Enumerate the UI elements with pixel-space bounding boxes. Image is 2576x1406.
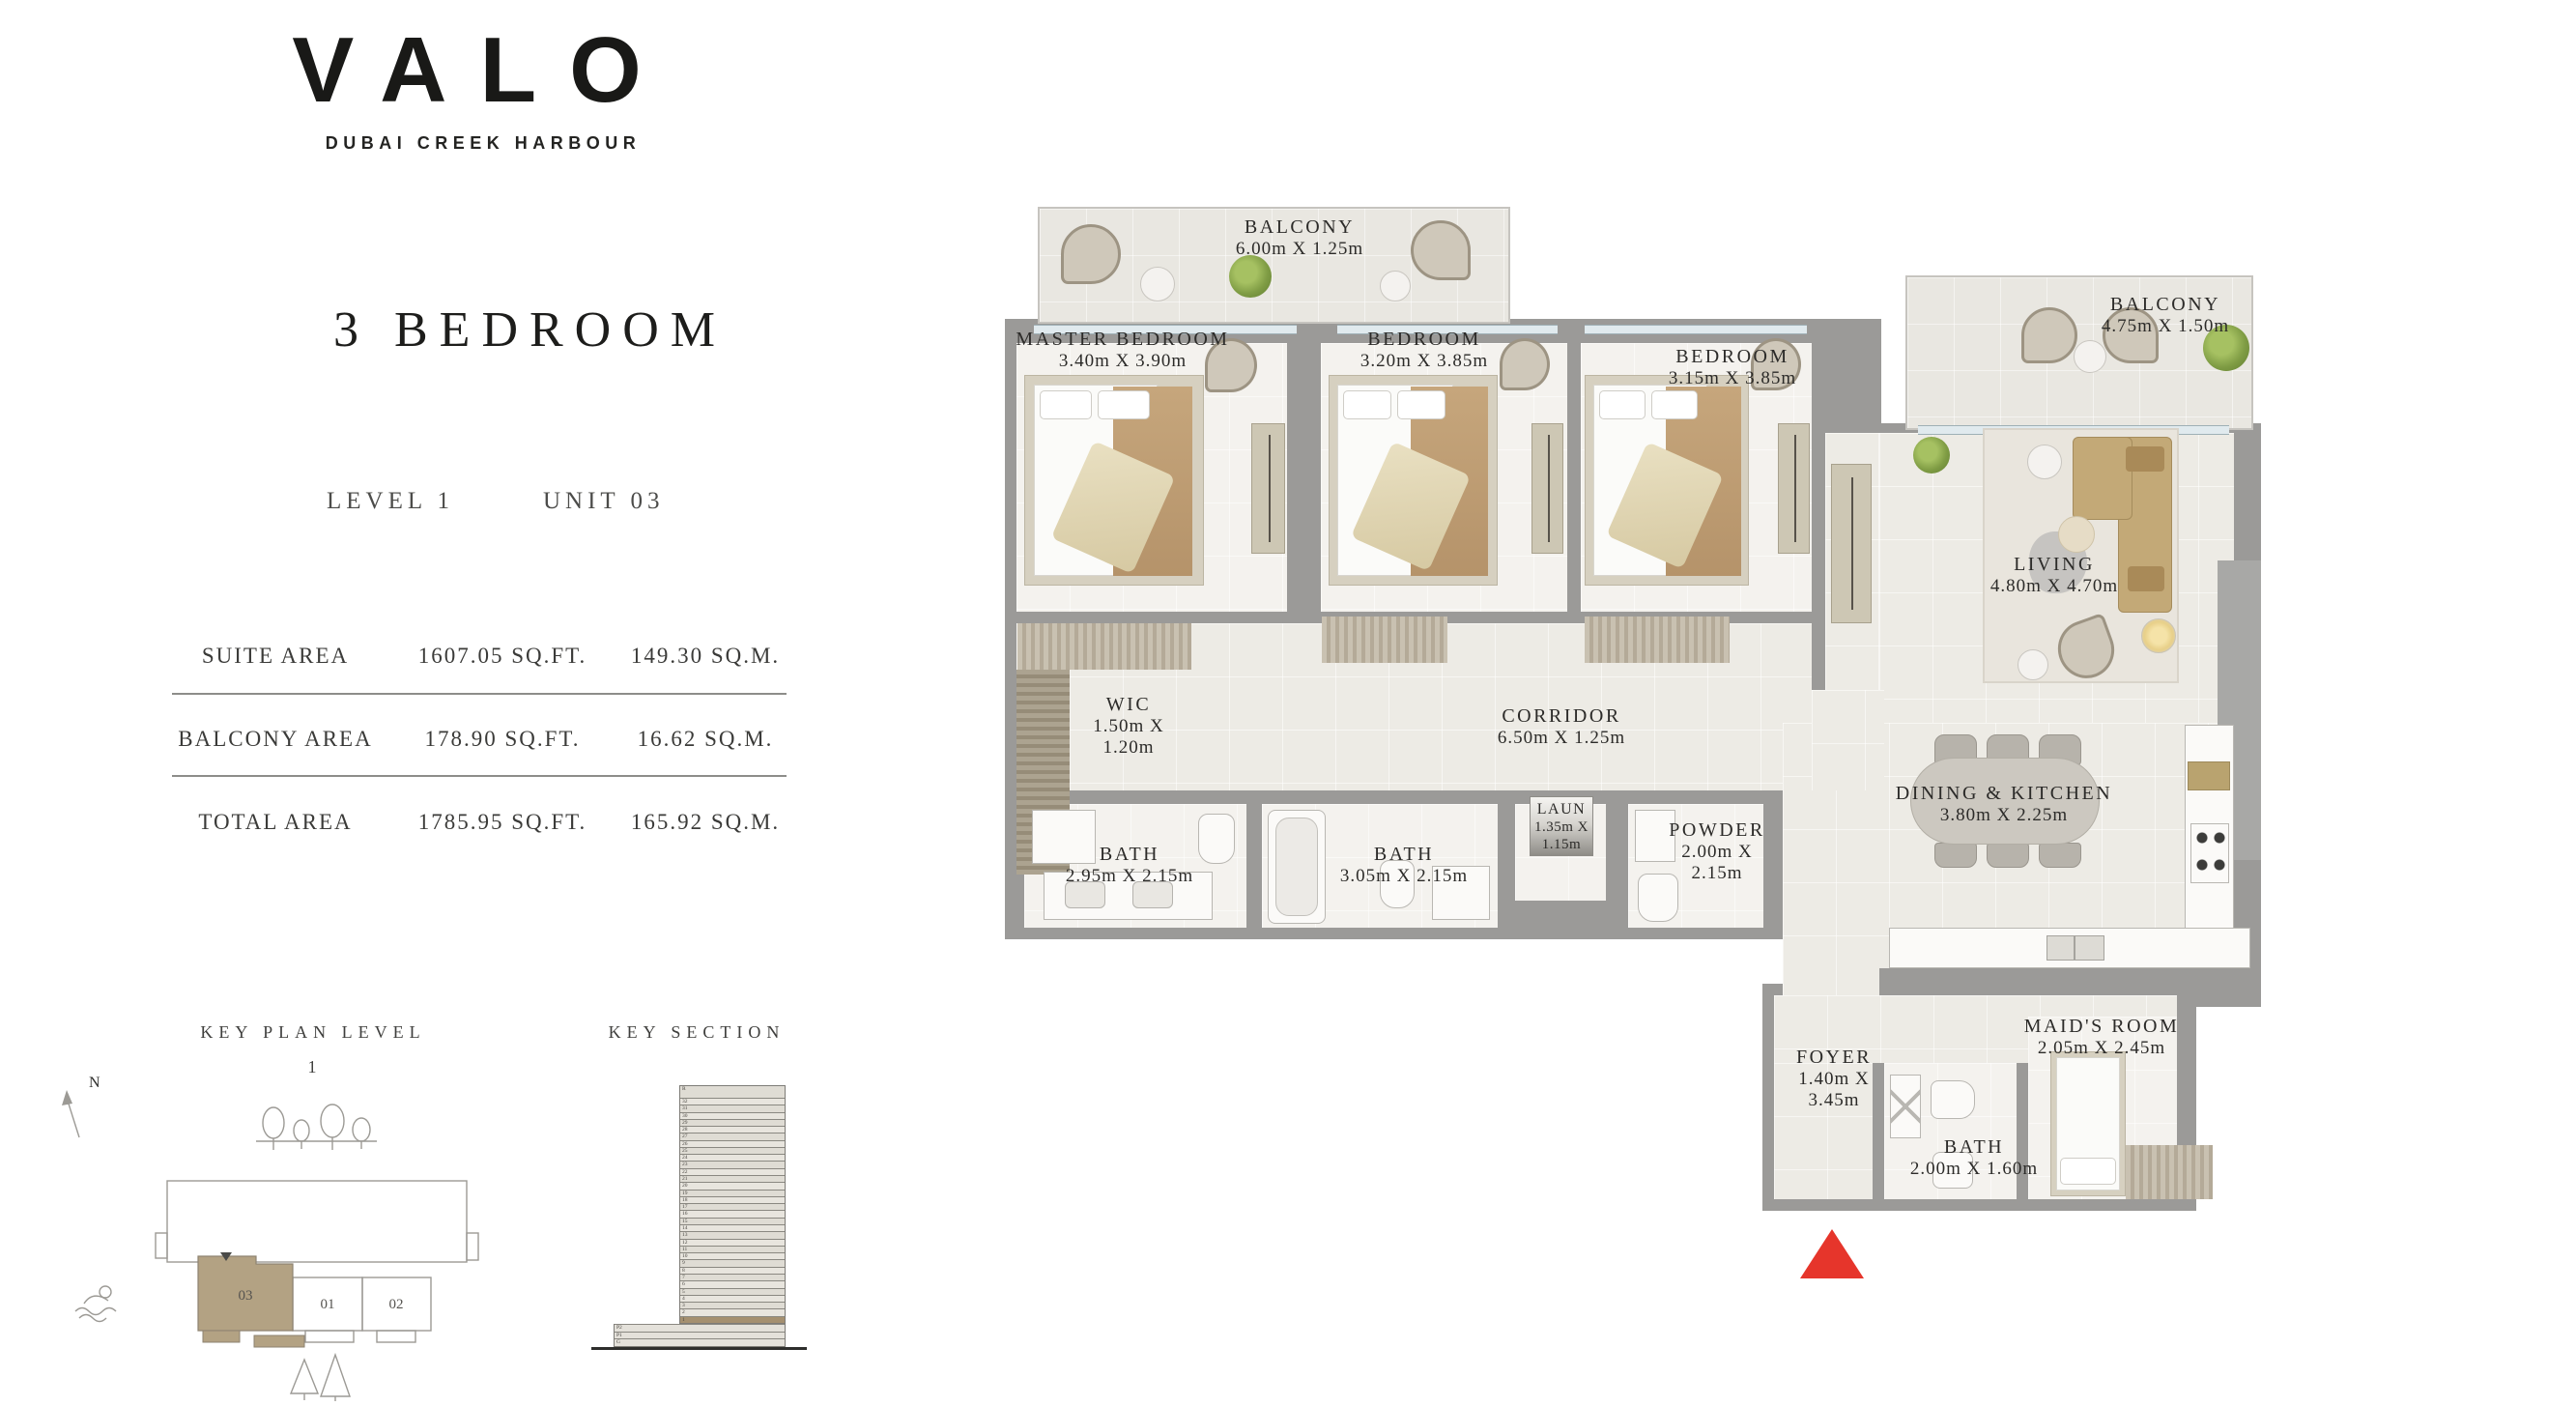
floor-row: 12 <box>680 1239 785 1246</box>
side-table <box>2074 340 2106 373</box>
room-label-powder: POWDER2.00m X2.15m <box>1669 819 1764 884</box>
stove <box>2190 823 2229 883</box>
room-dimensions: 2.05m X 2.45m <box>2024 1038 2180 1059</box>
pillow <box>1040 390 1092 419</box>
cutting-board <box>2188 761 2230 790</box>
floor-row: 24 <box>680 1154 785 1161</box>
room-label-balcony-1: BALCONY6.00m X 1.25m <box>1236 216 1363 260</box>
floor-row: 26 <box>680 1140 785 1147</box>
floor-row: 28 <box>680 1126 785 1133</box>
room-name: BATH <box>1340 844 1468 866</box>
room-name: WIC <box>1093 694 1164 716</box>
plant-icon <box>1229 255 1272 298</box>
brand-tagline: DUBAI CREEK HARBOUR <box>251 133 715 154</box>
dining-chair <box>1987 843 2029 868</box>
plant-icon <box>1913 437 1950 473</box>
dining-chair <box>1934 843 1977 868</box>
tree-icon <box>353 1118 370 1141</box>
unit-level: LEVEL 1 <box>327 488 454 515</box>
podium-row: G <box>615 1338 785 1346</box>
lounge-chair <box>1411 220 1471 280</box>
floor-label: 3 <box>682 1303 685 1308</box>
floor-row: 29 <box>680 1119 785 1126</box>
floor-label: 13 <box>682 1232 688 1238</box>
room-dimensions: 2.00m X <box>1669 842 1764 863</box>
room-name: BATH <box>1910 1136 2038 1159</box>
floor-row: 16 <box>680 1210 785 1217</box>
room-name: MASTER BEDROOM <box>1016 329 1229 351</box>
room-label-bath-3: BATH2.00m X 1.60m <box>1910 1136 2038 1180</box>
room-name: POWDER <box>1669 819 1764 842</box>
area-table-row: BALCONY AREA 178.90 SQ.FT. 16.62 SQ.M. <box>145 727 821 756</box>
pine-tree-icon <box>321 1355 350 1396</box>
podium-row: P1 <box>615 1332 785 1339</box>
floor-label: 17 <box>682 1204 688 1210</box>
pillow <box>1397 390 1445 419</box>
floor-label: 2 <box>682 1309 685 1315</box>
brochure-page: { "brand": { "logo": "VALO", "tagline": … <box>0 0 2576 1392</box>
floor-row: 6 <box>680 1280 785 1287</box>
floor-label: 4 <box>682 1296 685 1302</box>
side-table <box>2027 445 2062 479</box>
lounge-chair <box>1061 224 1121 284</box>
closet-floor <box>1017 623 1191 670</box>
floor-label: 21 <box>682 1176 688 1182</box>
room-label-bedroom-2: BEDROOM3.20m X 3.85m <box>1360 329 1488 372</box>
shower <box>1890 1075 1921 1138</box>
pillow <box>1098 390 1150 419</box>
north-label: N <box>89 1075 100 1092</box>
pillow <box>1599 390 1646 419</box>
room-label-dining-kitchen: DINING & KITCHEN3.80m X 2.25m <box>1896 783 2112 826</box>
key-section-tower: R323130292827262524232221201918171615141… <box>679 1085 786 1324</box>
floor-label: 32 <box>682 1099 688 1105</box>
area-sqm: 149.30 SQ.M. <box>589 644 821 669</box>
floor-row: 4 <box>680 1295 785 1302</box>
room-label-laun: LAUN1.35m X1.15m <box>1534 800 1589 853</box>
area-label: BALCONY AREA <box>164 727 386 752</box>
floor-row: 30 <box>680 1112 785 1119</box>
room-label-bath-1: BATH2.95m X 2.15m <box>1066 844 1193 887</box>
key-section-title: KEY SECTION <box>589 1022 804 1043</box>
floor-label: P2 <box>616 1325 622 1331</box>
area-label: TOTAL AREA <box>164 810 386 835</box>
floor-label: 18 <box>682 1197 688 1203</box>
room-name: LAUN <box>1534 800 1589 818</box>
floor-label: 16 <box>682 1211 688 1217</box>
floor-label: 9 <box>682 1260 685 1266</box>
bathtub-basin <box>1275 818 1318 916</box>
wardrobe <box>1531 423 1563 554</box>
pillow <box>2060 1158 2116 1185</box>
floor-label: 25 <box>682 1148 688 1154</box>
floor-label: 26 <box>682 1141 688 1147</box>
floor-label: 8 <box>682 1268 685 1274</box>
floor-row: R <box>680 1086 785 1098</box>
floor-row: 31 <box>680 1105 785 1111</box>
area-table-row: SUITE AREA 1607.05 SQ.FT. 149.30 SQ.M. <box>145 644 821 673</box>
sofa-cushion <box>2126 446 2164 472</box>
floor-label: 23 <box>682 1162 688 1167</box>
coffee-table-tray <box>2058 516 2095 553</box>
keyplan-unit-02-label: 02 <box>377 1297 415 1313</box>
side-table <box>2018 649 2048 680</box>
floor-row: 21 <box>680 1175 785 1182</box>
floor-row: 25 <box>680 1147 785 1154</box>
floor-row: 23 <box>680 1161 785 1167</box>
dining-chair <box>2039 843 2081 868</box>
area-label: SUITE AREA <box>164 644 386 669</box>
floor-row: 9 <box>680 1259 785 1266</box>
room-label-living: LIVING4.80m X 4.70m <box>1990 554 2118 597</box>
floor-label: 27 <box>682 1133 688 1139</box>
floor-lamp <box>2141 618 2176 653</box>
keyplan-building-outline <box>167 1181 467 1262</box>
sink-divider <box>2074 935 2075 961</box>
side-table <box>1140 267 1175 301</box>
room-label-balcony-2: BALCONY4.75m X 1.50m <box>2102 294 2229 337</box>
room-dimensions: 6.50m X 1.25m <box>1498 728 1625 749</box>
floor-row: 7 <box>680 1274 785 1280</box>
floor-label: R <box>682 1086 686 1092</box>
table-divider <box>172 693 787 695</box>
window <box>1585 325 1807 334</box>
floor-row: 20 <box>680 1182 785 1189</box>
room-label-master-bedroom: MASTER BEDROOM3.40m X 3.90m <box>1016 329 1229 372</box>
floor-label: 22 <box>682 1169 688 1175</box>
pine-tree-icon <box>291 1360 318 1393</box>
floor-row: 22 <box>680 1168 785 1175</box>
floor-row: 15 <box>680 1218 785 1224</box>
floor-label: 19 <box>682 1191 688 1196</box>
room-label-bath-2: BATH3.05m X 2.15m <box>1340 844 1468 887</box>
floor-row: 17 <box>680 1203 785 1210</box>
floor-label: P1 <box>616 1333 622 1338</box>
area-sqm: 16.62 SQ.M. <box>589 727 821 752</box>
pillow <box>1651 390 1698 419</box>
room-dimensions: 1.20m <box>1093 737 1164 759</box>
hall-wardrobe <box>1831 464 1872 623</box>
side-table <box>1380 271 1411 301</box>
room-dimensions: 6.00m X 1.25m <box>1236 239 1363 260</box>
key-plan-title: KEY PLAN LEVEL <box>120 1022 506 1043</box>
room-name: BEDROOM <box>1669 346 1796 368</box>
room-dimensions: 1.15m <box>1534 836 1589 853</box>
room-name: BALCONY <box>2102 294 2229 316</box>
area-table-row: TOTAL AREA 1785.95 SQ.FT. 165.92 SQ.M. <box>145 810 821 839</box>
floor-label: 28 <box>682 1127 688 1133</box>
room-dimensions: 2.95m X 2.15m <box>1066 866 1193 887</box>
key-plan-level: 1 <box>120 1057 506 1077</box>
floor-row: 27 <box>680 1133 785 1139</box>
floor-row: 3 <box>680 1302 785 1308</box>
room-name: BATH <box>1066 844 1193 866</box>
page-title: 3 BEDROOM <box>333 301 727 359</box>
floor-row: 11 <box>680 1246 785 1252</box>
room-dimensions: 1.40m X <box>1796 1069 1872 1090</box>
room-label-corridor: CORRIDOR6.50m X 1.25m <box>1498 705 1625 749</box>
floor-row: 32 <box>680 1098 785 1105</box>
room-dimensions: 3.05m X 2.15m <box>1340 866 1468 887</box>
floor-label: 12 <box>682 1240 688 1246</box>
sofa-chaise <box>2073 437 2132 520</box>
room-dimensions: 4.80m X 4.70m <box>1990 576 2118 597</box>
toilet <box>1198 814 1235 864</box>
sofa-cushion <box>2128 566 2164 591</box>
key-section-podium: P2P1G <box>614 1324 786 1347</box>
floor-label: 14 <box>682 1225 688 1231</box>
room-dimensions: 2.15m <box>1669 863 1764 884</box>
room-label-maids-room: MAID'S ROOM2.05m X 2.45m <box>2024 1016 2180 1059</box>
floor-label: 30 <box>682 1113 688 1119</box>
floor-row: 2 <box>680 1308 785 1315</box>
floor-label: 5 <box>682 1289 685 1295</box>
key-plan: KEY PLAN LEVEL 1 N <box>58 1015 502 1401</box>
unit-number: UNIT 03 <box>543 488 665 515</box>
floor-row: 18 <box>680 1196 785 1203</box>
room-name: DINING & KITCHEN <box>1896 783 2112 805</box>
floor-label: 24 <box>682 1155 688 1161</box>
room-dimensions: 3.20m X 3.85m <box>1360 351 1488 372</box>
key-section: KEY SECTION R323130292827262524232221201… <box>589 1015 821 1392</box>
tree-icon <box>294 1120 309 1141</box>
room-name: FOYER <box>1796 1047 1872 1069</box>
floor-label: 11 <box>682 1247 687 1252</box>
toilet <box>1931 1080 1975 1119</box>
pillow <box>1343 390 1391 419</box>
room-dimensions: 3.80m X 2.25m <box>1896 805 2112 826</box>
closet-floor <box>1585 617 1730 663</box>
keyplan-unit-03-label: 03 <box>226 1288 265 1305</box>
room-dimensions: 4.75m X 1.50m <box>2102 316 2229 337</box>
room-dimensions: 1.35m X <box>1534 818 1589 836</box>
swimmer-icon <box>100 1286 111 1298</box>
floor-label: 31 <box>682 1105 688 1111</box>
room-name: BALCONY <box>1236 216 1363 239</box>
wardrobe <box>1251 423 1285 554</box>
room-name: LIVING <box>1990 554 2118 576</box>
room-label-foyer: FOYER1.40m X3.45m <box>1796 1047 1872 1111</box>
brand-logo: VALO <box>251 17 715 124</box>
room-name: CORRIDOR <box>1498 705 1625 728</box>
floor-label: 7 <box>682 1275 685 1280</box>
kitchen-sink <box>2046 935 2104 961</box>
tree-icon <box>263 1107 284 1138</box>
room-dimensions: 3.40m X 3.90m <box>1016 351 1229 372</box>
floor-label: 15 <box>682 1219 688 1224</box>
room-dimensions: 3.45m <box>1796 1090 1872 1111</box>
floor-row: 8 <box>680 1267 785 1274</box>
floor-label: 10 <box>682 1253 688 1259</box>
closet-floor <box>1322 617 1447 663</box>
entrance-marker <box>1800 1229 1864 1278</box>
floor-row: 13 <box>680 1231 785 1238</box>
room-name: MAID'S ROOM <box>2024 1016 2180 1038</box>
room-dimensions: 1.50m X <box>1093 716 1164 737</box>
podium-row: P2 <box>615 1324 785 1332</box>
floor-row: 1 <box>680 1316 785 1323</box>
room-label-bedroom-3: BEDROOM3.15m X 3.85m <box>1669 346 1796 389</box>
floor-label: 29 <box>682 1120 688 1126</box>
area-sqm: 165.92 SQ.M. <box>589 810 821 835</box>
armchair <box>1500 338 1550 390</box>
floor-row: 19 <box>680 1190 785 1196</box>
floor-row: 5 <box>680 1288 785 1295</box>
room-name: BEDROOM <box>1360 329 1488 351</box>
lounge-chair <box>2021 307 2077 363</box>
floor-label: 1 <box>682 1317 685 1323</box>
table-divider <box>172 775 787 777</box>
tree-icon <box>321 1105 344 1137</box>
corridor-opening-floor <box>1812 690 1884 790</box>
floor-label: 20 <box>682 1183 688 1189</box>
keyplan-unit-01-label: 01 <box>308 1297 347 1313</box>
room-dimensions: 2.00m X 1.60m <box>1910 1159 2038 1180</box>
floor-label: 6 <box>682 1281 685 1287</box>
floor-row: 10 <box>680 1252 785 1259</box>
floor-plan: BALCONY6.00m X 1.25mMASTER BEDROOM3.40m … <box>1005 184 2286 1295</box>
floor-label: G <box>616 1339 620 1345</box>
wardrobe <box>1778 423 1810 554</box>
ground-line <box>591 1347 807 1350</box>
maids-wardrobe <box>2126 1145 2213 1199</box>
floor-row: 14 <box>680 1224 785 1231</box>
room-label-wic: WIC1.50m X1.20m <box>1093 694 1164 759</box>
room-dimensions: 3.15m X 3.85m <box>1669 368 1796 389</box>
